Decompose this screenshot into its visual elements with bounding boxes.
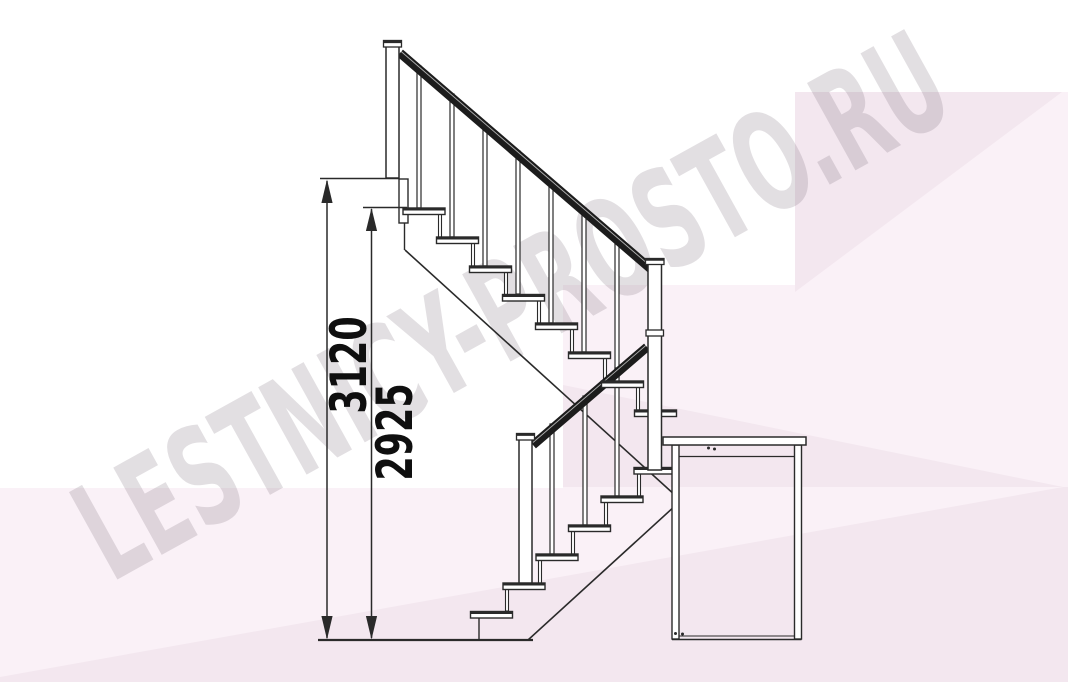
riser	[506, 589, 509, 611]
riser	[539, 560, 542, 583]
stair-drawing-svg: LESTNICY-PROSTO.RU	[0, 0, 1068, 682]
riser	[538, 300, 541, 323]
tread	[569, 525, 611, 532]
dimension-value-to-tread: 2925	[367, 383, 425, 480]
drawing-canvas: LESTNICY-PROSTO.RU	[0, 0, 1068, 682]
baluster	[450, 94, 454, 237]
baluster	[550, 424, 554, 554]
middle-newel-post	[646, 259, 665, 471]
baluster	[582, 208, 586, 352]
screw-dot	[713, 448, 716, 451]
tread	[437, 237, 479, 244]
baluster	[516, 151, 520, 294]
tread	[471, 612, 513, 619]
tread	[602, 381, 644, 388]
riser	[505, 272, 508, 295]
cabinet-left-stile	[672, 445, 679, 639]
riser	[571, 329, 574, 352]
arrow-up-icon	[321, 180, 332, 204]
riser	[439, 214, 442, 237]
arrow-up-icon	[366, 208, 377, 231]
screw-dot	[707, 447, 710, 450]
baluster	[615, 237, 619, 381]
cabinet-right-stile	[795, 445, 802, 639]
screw-dot	[681, 633, 684, 636]
tread	[503, 295, 545, 302]
tread	[536, 323, 578, 330]
lower-rail-post	[517, 434, 535, 584]
riser	[637, 387, 640, 411]
tread	[536, 554, 578, 561]
tread	[470, 266, 512, 273]
upper-floor-post	[399, 179, 408, 223]
post-body	[519, 437, 532, 583]
tread	[403, 208, 445, 215]
tread	[601, 496, 643, 503]
baluster	[583, 396, 587, 525]
baluster	[549, 180, 553, 323]
post-body	[648, 262, 662, 470]
post-joint	[646, 330, 664, 336]
riser	[572, 531, 575, 554]
baluster	[417, 66, 421, 208]
top-newel-post	[384, 41, 402, 179]
screw-dot	[674, 632, 677, 635]
riser	[638, 474, 641, 496]
post-body	[386, 45, 399, 178]
riser	[472, 243, 475, 266]
landing-top-plate	[663, 437, 806, 445]
baluster	[483, 123, 487, 266]
tread	[569, 352, 611, 359]
tread	[503, 583, 545, 590]
riser	[605, 502, 608, 525]
